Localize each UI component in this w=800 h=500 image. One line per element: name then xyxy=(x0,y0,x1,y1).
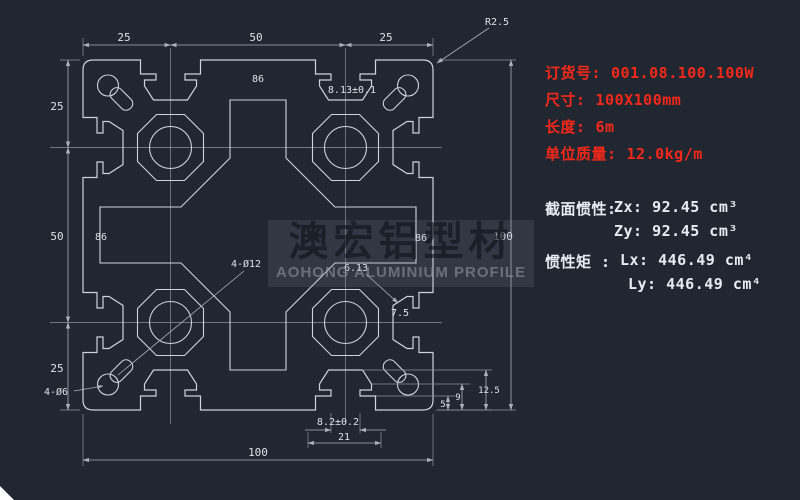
corner-holes xyxy=(98,75,419,395)
spec-value: 100X100mm xyxy=(596,91,682,109)
dim-top-right: 25 xyxy=(379,31,392,44)
spec-label: 长度: xyxy=(545,118,586,136)
profile-drawing: 25 50 25 R2.5 86 8.13±0.1 25 50 25 86 86… xyxy=(0,0,540,500)
dim-depth: 7.5 xyxy=(391,308,409,319)
dim-corner-radius: R2.5 xyxy=(485,17,509,28)
profile-outline xyxy=(83,60,433,410)
dim-slot-top: 8.13±0.1 xyxy=(328,85,376,96)
dim-left-bottom: 25 xyxy=(50,362,63,375)
spec-moment-label: 惯性矩 : xyxy=(545,251,611,272)
spec-ly: Ly: 446.49 cm⁴ xyxy=(628,275,761,293)
dim-inner-left: 86 xyxy=(95,232,107,243)
spec-label: 尺寸: xyxy=(545,91,586,109)
dim-inner-top: 86 xyxy=(252,74,264,85)
dim-inner-right: 86 xyxy=(415,233,427,244)
spec-section-inertia-label: 截面惯性: xyxy=(545,198,617,219)
dim-slot-bottom-width: 21 xyxy=(338,432,350,443)
spec-zx: Zx: 92.45 cm³ xyxy=(614,198,738,216)
dim-overall-width: 100 xyxy=(248,446,268,459)
dim-top-mid: 50 xyxy=(249,31,262,44)
center-holes xyxy=(150,127,367,344)
dim-note-mid: 6.13 xyxy=(344,263,368,274)
spec-length: 长度:6m xyxy=(545,116,615,137)
dim-top-left: 25 xyxy=(117,31,130,44)
spec-unit-weight: 单位质量:12.0kg/m xyxy=(545,143,703,164)
spec-order-no: 订货号:001.08.100.100W xyxy=(545,62,754,83)
dim-step-12-5: 12.5 xyxy=(478,386,500,396)
dim-center-holes: 4-Ø12 xyxy=(231,258,261,270)
spec-value: 6m xyxy=(596,118,615,136)
dim-step-9: 9 xyxy=(455,393,460,403)
dim-slot-bottom: 8.2±0.2 xyxy=(317,417,359,428)
spec-size: 尺寸:100X100mm xyxy=(545,89,681,110)
dimension-lines xyxy=(60,28,516,466)
corner-wedge xyxy=(0,486,14,500)
dim-step-5: 5 xyxy=(440,400,445,410)
cad-drawing-view: 25 50 25 R2.5 86 8.13±0.1 25 50 25 86 86… xyxy=(0,0,800,500)
spec-label: 单位质量: xyxy=(545,145,617,163)
hole-bosses xyxy=(138,115,379,356)
dim-left-mid: 50 xyxy=(50,230,63,243)
dim-overall-height: 100 xyxy=(493,230,513,243)
spec-lx: Lx: 446.49 cm⁴ xyxy=(620,251,753,269)
spec-value: 12.0kg/m xyxy=(627,145,703,163)
center-cavity xyxy=(100,100,416,370)
spec-value: 001.08.100.100W xyxy=(611,64,754,82)
dim-left-top: 25 xyxy=(50,100,63,113)
spec-label: 订货号: xyxy=(545,64,601,82)
dim-corner-holes: 4-Ø6 xyxy=(44,386,68,398)
spec-zy: Zy: 92.45 cm³ xyxy=(614,222,738,240)
